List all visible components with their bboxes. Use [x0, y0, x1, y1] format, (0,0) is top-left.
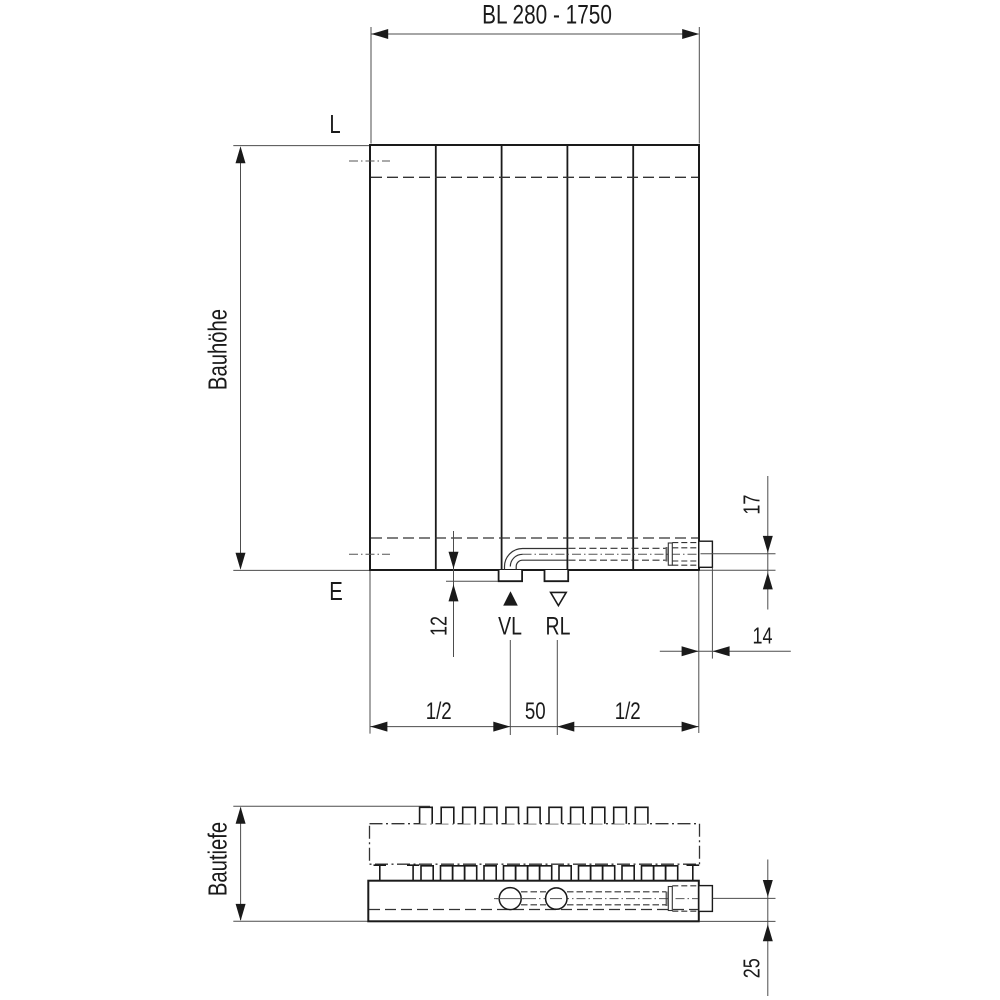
svg-text:VL: VL: [498, 612, 522, 640]
svg-text:L: L: [329, 110, 340, 139]
svg-text:25: 25: [740, 958, 766, 978]
svg-text:Bauhöhe: Bauhöhe: [203, 309, 232, 390]
svg-text:14: 14: [753, 623, 773, 649]
svg-text:12: 12: [427, 616, 453, 636]
svg-text:1/2: 1/2: [426, 698, 452, 725]
svg-text:17: 17: [740, 495, 766, 515]
svg-text:BL 280 - 1750: BL 280 - 1750: [482, 0, 612, 30]
svg-text:E: E: [329, 577, 343, 606]
svg-text:1/2: 1/2: [615, 698, 641, 725]
svg-text:50: 50: [525, 698, 546, 725]
svg-text:Bautiefe: Bautiefe: [203, 822, 232, 896]
svg-text:RL: RL: [546, 612, 571, 640]
